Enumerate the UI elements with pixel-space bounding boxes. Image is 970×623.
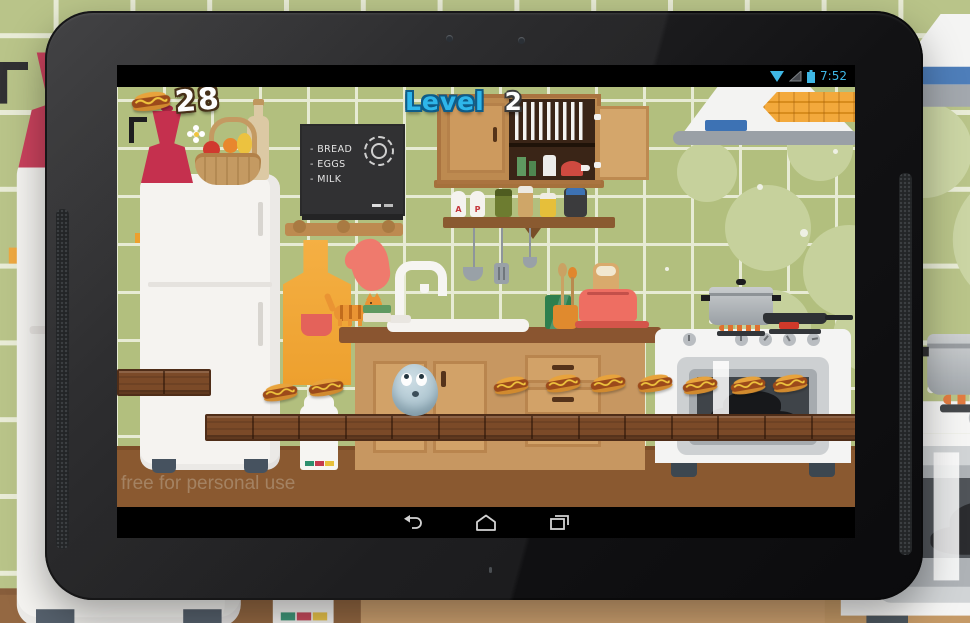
back-icon — [401, 515, 423, 531]
flower-center — [194, 132, 199, 137]
plank — [533, 416, 580, 439]
back-button[interactable] — [399, 513, 425, 533]
game-overlay: 28 Level 2 free for personal use — [117, 87, 855, 507]
tablet-device: 7:52 — [45, 11, 923, 600]
navigation-bar — [117, 507, 855, 538]
plank — [440, 416, 487, 439]
hotdog-collectible — [544, 371, 583, 395]
plank — [626, 416, 673, 439]
hotdog-icon — [636, 371, 675, 395]
hotdog-icon — [729, 373, 768, 397]
hud: 28 Level 2 — [117, 87, 855, 147]
plank — [347, 416, 394, 439]
player-character[interactable] — [392, 364, 438, 416]
watermark-text: free for personal use — [121, 473, 295, 495]
plank — [813, 416, 855, 439]
tablet-screen: 7:52 — [117, 65, 855, 538]
score-hotdog-icon — [130, 88, 172, 113]
plank — [580, 416, 627, 439]
hotdog-collectible — [589, 371, 628, 395]
signal-icon — [789, 71, 802, 82]
plank — [119, 371, 165, 394]
hotdog-collectible — [261, 380, 300, 404]
home-icon — [475, 514, 497, 531]
character-mouth — [412, 391, 419, 397]
plank — [254, 416, 301, 439]
left-speaker-grille — [56, 209, 69, 549]
plank — [486, 416, 533, 439]
score-value: 28 — [174, 87, 223, 120]
hotdog-icon — [307, 375, 346, 399]
level-label: Level — [405, 87, 485, 116]
plank — [673, 416, 720, 439]
hotdog-collectible — [492, 373, 531, 397]
hotdog-icon — [492, 373, 531, 397]
plank — [719, 416, 766, 439]
clock: 7:52 — [820, 69, 847, 83]
microphone — [489, 567, 492, 573]
hotdog-icon — [681, 373, 720, 397]
plank — [207, 416, 254, 439]
plank — [165, 371, 209, 394]
hotdog-collectible — [681, 373, 720, 397]
level-number: 2 — [504, 87, 522, 116]
character-eye — [401, 373, 412, 386]
hotdog-icon — [771, 371, 810, 395]
hotdog-icon — [544, 371, 583, 395]
hotdog-collectible — [771, 371, 810, 395]
screenshot-stage: - BREAD - EGGS - MILK A P — [0, 0, 970, 623]
level-indicator: Level 2 — [405, 87, 523, 116]
hotdog-icon — [589, 371, 628, 395]
wifi-icon — [770, 71, 784, 82]
right-speaker-grille — [899, 173, 912, 555]
hotdog-collectible — [729, 373, 768, 397]
plank — [393, 416, 440, 439]
home-button[interactable] — [473, 513, 499, 533]
plank — [300, 416, 347, 439]
battery-icon — [807, 70, 815, 83]
character-eye — [416, 373, 427, 386]
game-viewport[interactable]: - BREAD - EGGS - MILK A P — [117, 87, 855, 507]
recents-button[interactable] — [547, 513, 573, 533]
wooden-platform — [117, 369, 211, 396]
plank — [766, 416, 813, 439]
status-bar: 7:52 — [117, 65, 855, 87]
wooden-platform — [205, 414, 855, 441]
hotdog-collectible — [636, 371, 675, 395]
hotdog-icon — [261, 380, 300, 404]
front-camera — [446, 35, 453, 42]
hotdog-collectible — [307, 375, 346, 399]
light-sensor — [518, 37, 525, 44]
recents-icon — [549, 514, 571, 531]
